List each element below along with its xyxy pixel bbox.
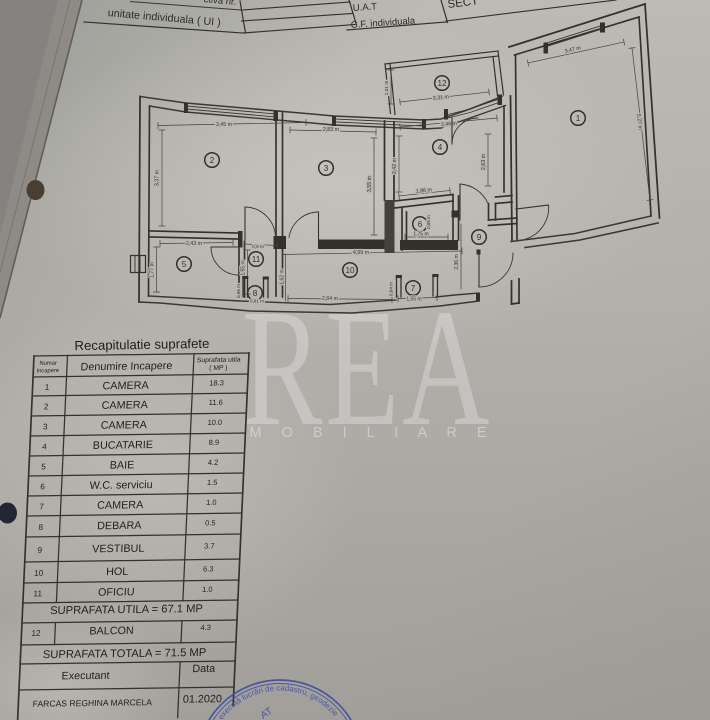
svg-text:10: 10 — [345, 266, 355, 275]
svg-text:12: 12 — [437, 79, 447, 88]
svg-text:DEBARA: DEBARA — [97, 520, 143, 533]
svg-text:12: 12 — [31, 629, 41, 638]
svg-text:01.2020: 01.2020 — [183, 693, 223, 706]
svg-text:M O B I L I A R E: M O B I L I A R E — [249, 425, 494, 441]
svg-text:Suprafata utila: Suprafata utila — [197, 357, 241, 365]
svg-text:2,63 m: 2,63 m — [481, 153, 487, 170]
svg-text:11.6: 11.6 — [209, 398, 223, 407]
svg-text:Incapere: Incapere — [36, 368, 59, 374]
svg-text:5: 5 — [182, 260, 187, 269]
svg-text:8: 8 — [38, 523, 43, 532]
svg-text:Denumire Incapere: Denumire Incapere — [80, 360, 172, 373]
svg-text:11: 11 — [252, 255, 261, 264]
svg-text:3.7: 3.7 — [204, 541, 215, 550]
svg-text:4.3: 4.3 — [200, 623, 211, 632]
svg-text:3,55 m: 3,55 m — [367, 175, 373, 192]
svg-text:1.0: 1.0 — [202, 585, 213, 594]
svg-text:6: 6 — [40, 482, 45, 491]
svg-text:3,37 m: 3,37 m — [155, 169, 161, 186]
svg-text:3: 3 — [324, 164, 329, 173]
svg-text:Numar: Numar — [39, 361, 57, 367]
svg-text:10: 10 — [34, 569, 44, 578]
svg-text:2: 2 — [210, 156, 215, 165]
svg-text:3,46 m: 3,46 m — [441, 121, 458, 128]
svg-text:FARCAS REGHINA MARCELA: FARCAS REGHINA MARCELA — [32, 697, 152, 709]
svg-text:1.5: 1.5 — [207, 478, 218, 487]
svg-text:SUPRAFATA UTILA = 67.1 MP: SUPRAFATA UTILA = 67.1 MP — [50, 603, 203, 617]
svg-text:5: 5 — [41, 462, 46, 471]
svg-text:4,99 m: 4,99 m — [353, 250, 370, 256]
svg-text:Recapitulatie suprafete: Recapitulatie suprafete — [74, 336, 209, 353]
svg-text:OFICIU: OFICIU — [98, 586, 135, 599]
svg-text:2,42 m: 2,42 m — [392, 157, 398, 174]
svg-text:0,56 m: 0,56 m — [236, 284, 241, 298]
svg-text:SUPRAFATA TOTALA = 71.5 MP: SUPRAFATA TOTALA = 71.5 MP — [43, 647, 207, 661]
svg-text:Data: Data — [192, 663, 215, 675]
svg-text:1,55 m: 1,55 m — [241, 260, 247, 275]
svg-text:0,9 m: 0,9 m — [252, 244, 264, 250]
svg-text:1: 1 — [45, 383, 50, 392]
svg-text:1,77 m: 1,77 m — [150, 261, 156, 278]
svg-text:CAMERA: CAMERA — [100, 419, 148, 432]
svg-text:VESTIBUL: VESTIBUL — [92, 543, 145, 556]
svg-text:3,45 m: 3,45 m — [216, 122, 233, 128]
svg-text:9: 9 — [477, 233, 482, 242]
svg-text:CAMERA: CAMERA — [97, 499, 145, 512]
svg-text:11: 11 — [33, 589, 42, 598]
svg-text:U.A.T: U.A.T — [352, 1, 377, 14]
svg-text:8.9: 8.9 — [209, 438, 220, 447]
svg-text:CAMERA: CAMERA — [102, 380, 150, 393]
svg-text:HOL: HOL — [106, 566, 129, 578]
svg-text:CAMERA: CAMERA — [101, 399, 149, 412]
svg-text:1,75 m: 1,75 m — [413, 232, 428, 238]
svg-text:18.3: 18.3 — [209, 378, 224, 387]
svg-text:0.5: 0.5 — [205, 518, 216, 527]
svg-text:BUCATARIE: BUCATARIE — [93, 439, 154, 452]
svg-text:BAIE: BAIE — [109, 459, 134, 471]
svg-text:4: 4 — [42, 442, 47, 451]
svg-text:1.0: 1.0 — [206, 498, 217, 507]
svg-text:2,83 m: 2,83 m — [323, 127, 340, 133]
svg-text:BALCON: BALCON — [89, 625, 134, 638]
svg-text:9: 9 — [37, 546, 42, 555]
svg-text:0,85 m: 0,85 m — [426, 215, 431, 229]
svg-text:7: 7 — [39, 502, 44, 511]
svg-text:3: 3 — [43, 422, 48, 431]
svg-text:1,31 m: 1,31 m — [384, 81, 390, 96]
svg-text:4: 4 — [438, 143, 443, 152]
svg-text:2: 2 — [44, 402, 49, 411]
svg-text:6.3: 6.3 — [203, 564, 214, 573]
svg-text:6: 6 — [418, 220, 423, 229]
svg-text:Executant: Executant — [61, 670, 110, 683]
svg-text:2,36 m: 2,36 m — [454, 254, 460, 269]
svg-text:2,43 m: 2,43 m — [186, 241, 203, 247]
svg-text:1: 1 — [576, 114, 581, 123]
svg-text:4.2: 4.2 — [208, 458, 219, 467]
svg-text:( MP ): ( MP ) — [209, 365, 228, 372]
svg-text:10.0: 10.0 — [207, 418, 222, 427]
svg-text:W.C. serviciu: W.C. serviciu — [89, 479, 153, 492]
